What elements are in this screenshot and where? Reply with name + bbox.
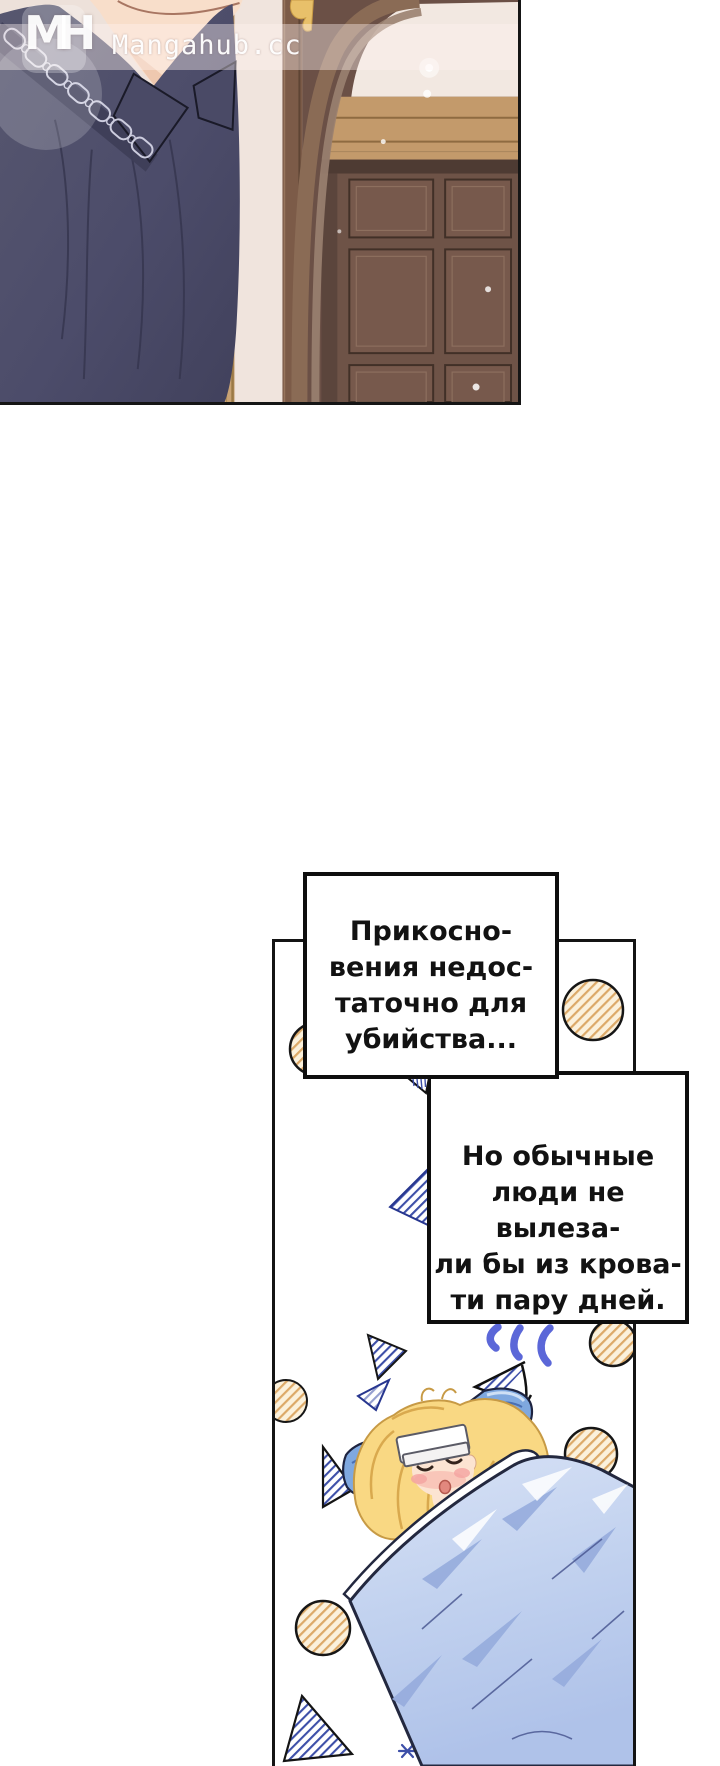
bubble-line: ти пару дней.	[431, 1283, 685, 1319]
manga-page: MH Mangahub.cc	[0, 0, 720, 1766]
speech-bubble-1: Прикосно- вения недос- таточно для убийс…	[303, 872, 559, 1079]
bubble-line: убийства...	[307, 1022, 555, 1058]
panel-hallway: MH Mangahub.cc	[0, 0, 521, 405]
bubble-line: таточно для	[307, 986, 555, 1022]
site-name-watermark: Mangahub.cc	[112, 30, 302, 61]
fever-squiggles	[490, 1327, 550, 1363]
open-mouth	[440, 1481, 451, 1494]
bubble-line: люди не вылеза-	[431, 1175, 685, 1247]
speech-bubble-2: Но обычные люди не вылеза- ли бы из кров…	[427, 1071, 689, 1324]
bubble-line: Прикосно-	[307, 914, 555, 950]
bubble-corner-curl	[407, 1077, 433, 1097]
bubble-line: ли бы из крова-	[431, 1247, 685, 1283]
site-logo: MH	[24, 6, 84, 60]
bubble-line: Но обычные	[431, 1139, 685, 1175]
bubble-line: вения недос-	[307, 950, 555, 986]
